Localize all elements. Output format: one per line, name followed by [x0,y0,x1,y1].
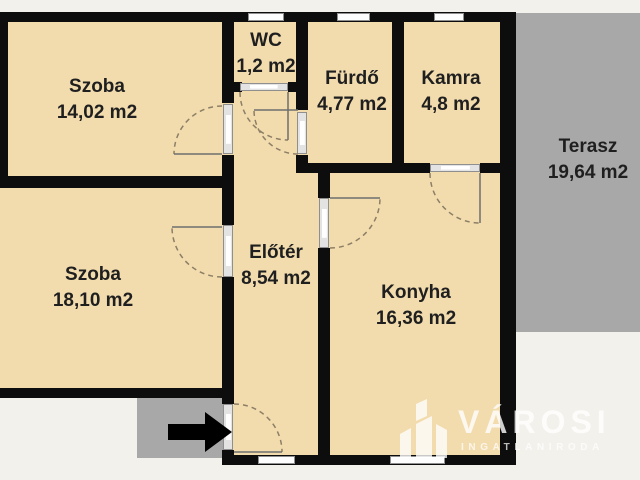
wall-below-furdo [296,163,430,173]
wall-left [0,12,8,188]
wall-szoba-divider [0,176,222,188]
door-furdo [297,112,307,154]
room-area: 18,10 m2 [8,288,178,314]
room-name: Konyha [348,280,484,306]
wall-szoba2-bottom [0,388,234,398]
room-area: 4,8 m2 [400,92,502,118]
room-label-terasz: Terasz 19,64 m2 [528,134,640,186]
door-entrance [223,404,233,450]
window-konyha [390,456,445,464]
room-label-konyha: Konyha 16,36 m2 [348,280,484,332]
room-area: 4,77 m2 [300,92,404,118]
room-area: 16,36 m2 [348,306,484,332]
room-name: Kamra [400,66,502,92]
brand-tagline: INGATLANIRODA [461,442,604,453]
room-label-szoba-2: Szoba 18,10 m2 [8,262,178,314]
wall-wc-bottom-seg2 [288,82,296,92]
room-area: 14,02 m2 [12,100,182,126]
door-kamra [430,164,480,172]
room-area: 19,64 m2 [528,160,640,186]
room-name: WC [214,28,318,54]
wall-right [500,12,516,465]
room-name: Szoba [12,74,182,100]
wall-below-kamra [480,163,502,173]
entrance-porch-area [137,398,227,458]
wall-konyha-left-seg1 [318,163,330,198]
room-label-szoba-1: Szoba 14,02 m2 [12,74,182,126]
window-wc [248,13,284,21]
room-label-eloter: Előtér 8,54 m2 [214,240,338,292]
wall-corridor-seg3 [222,277,234,398]
room-label-furdo: Fürdő 4,77 m2 [300,66,404,118]
room-area: 8,54 m2 [214,266,338,292]
room-name: Előtér [214,240,338,266]
door-wc [240,83,288,91]
room-name: Szoba [8,262,178,288]
room-name: Terasz [528,134,640,160]
wall-entrance-seg2 [222,450,234,465]
room-label-kamra: Kamra 4,8 m2 [400,66,502,118]
window-eloter [258,456,295,464]
window-furdo [337,13,370,21]
door-szoba-1 [223,104,233,154]
wall-corridor-seg2 [222,155,234,225]
window-kamra [434,13,464,21]
brand-name: VÁROSI [458,404,611,441]
floorplan-canvas: Szoba 14,02 m2 WC 1,2 m2 Fürdő 4,77 m2 K… [0,0,640,480]
room-name: Fürdő [300,66,404,92]
